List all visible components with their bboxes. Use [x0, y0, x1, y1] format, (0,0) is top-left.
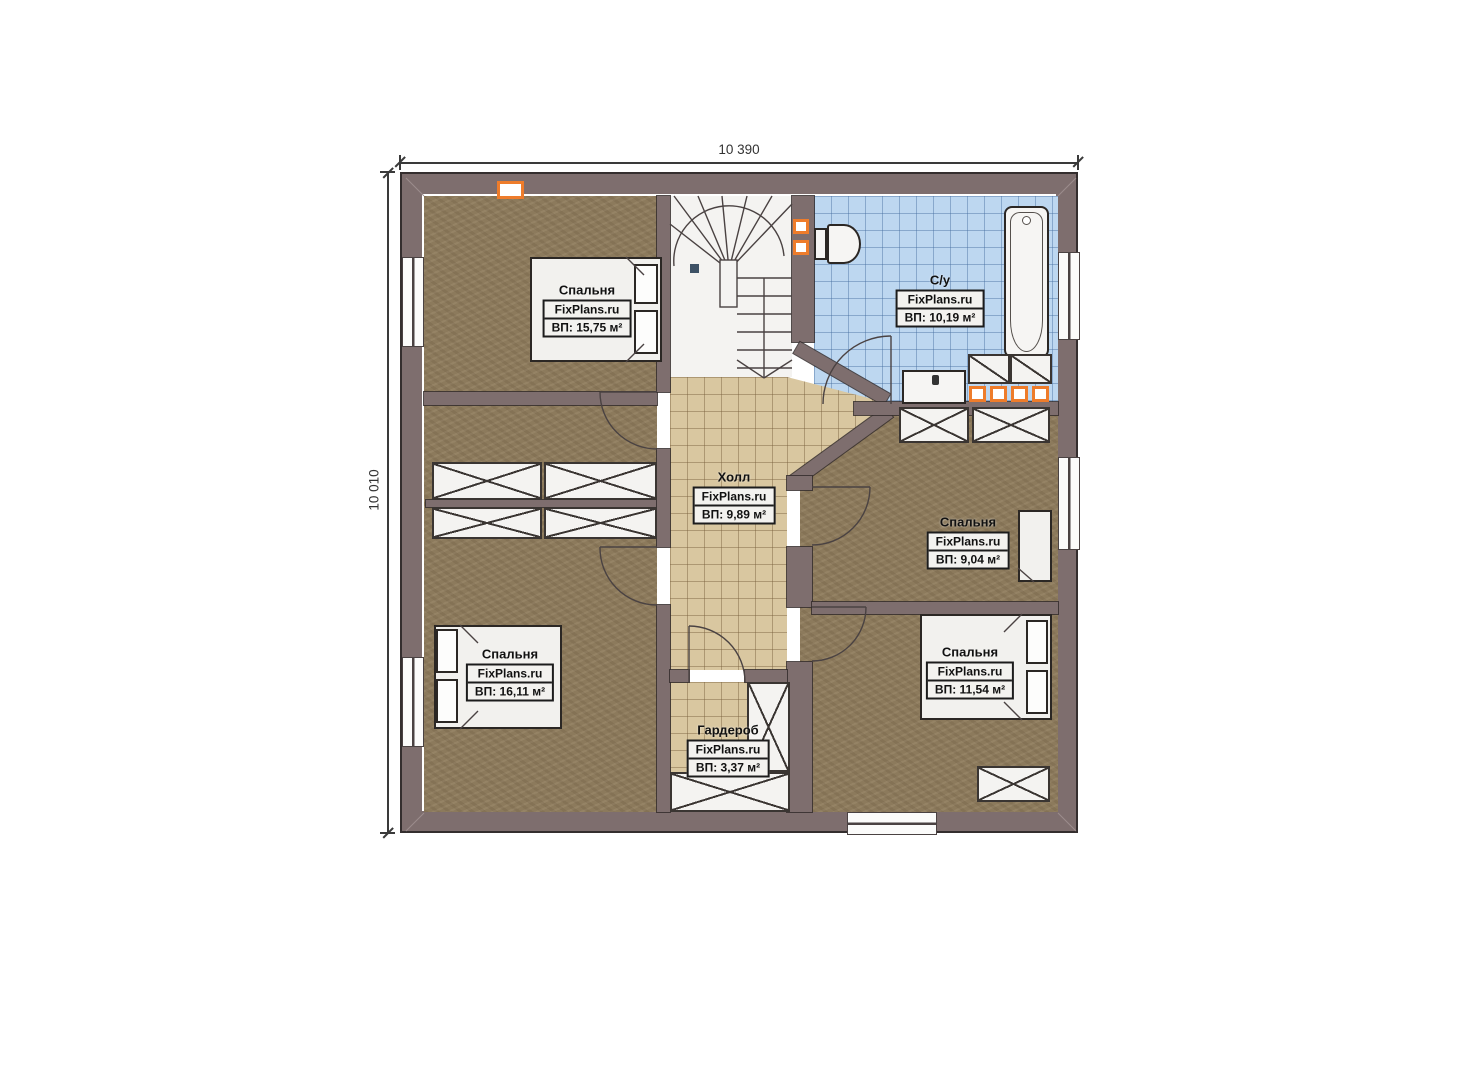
wall-segment	[792, 196, 814, 342]
pillow	[634, 310, 658, 354]
bathtub-drain	[1022, 216, 1031, 225]
closet-unit	[899, 407, 969, 443]
room-name: С/у	[896, 273, 985, 288]
room-label-bathroom: С/у FixPlans.ru ВП: 10,19 м²	[896, 273, 985, 328]
radiator-cell	[969, 386, 986, 402]
faucet	[932, 375, 939, 385]
room-area: ВП: 15,75 м²	[545, 318, 630, 336]
window-left-bottom	[402, 657, 424, 747]
room-area: ВП: 10,19 м²	[898, 308, 983, 326]
dimension-height-label: 10 010	[367, 465, 382, 514]
vent-stair-wall	[793, 240, 809, 255]
bath-cabinet	[968, 354, 1010, 384]
dimension-end	[1077, 155, 1079, 170]
closet-unit	[977, 766, 1050, 802]
window-right-bedroom	[1058, 457, 1080, 550]
sink	[902, 370, 966, 404]
pillow	[436, 679, 458, 723]
room-label-bedroom-tl: Спальня FixPlans.ru ВП: 15,75 м²	[543, 283, 632, 338]
pillow	[1026, 670, 1048, 714]
room-label-bedroom-bl: Спальня FixPlans.ru ВП: 16,11 м²	[466, 647, 554, 702]
dimension-end	[380, 171, 395, 173]
brand-watermark: FixPlans.ru	[898, 292, 983, 308]
room-label-box: FixPlans.ru ВП: 16,11 м²	[466, 664, 554, 702]
dimension-line-left	[387, 172, 389, 833]
room-name: Гардероб	[687, 723, 770, 738]
closet-unit	[432, 462, 542, 500]
brand-watermark: FixPlans.ru	[929, 534, 1008, 550]
wall-segment	[745, 670, 787, 682]
room-area: ВП: 3,37 м²	[689, 758, 768, 776]
room-label-box: FixPlans.ru ВП: 9,04 м²	[927, 532, 1010, 570]
room-label-bedroom-mr: Спальня FixPlans.ru ВП: 9,04 м²	[927, 515, 1010, 570]
room-label-hall: Холл FixPlans.ru ВП: 9,89 м²	[693, 470, 776, 525]
room-label-box: FixPlans.ru ВП: 15,75 м²	[543, 300, 632, 338]
window-right-bathroom	[1058, 252, 1080, 340]
vent-stair-wall	[793, 219, 809, 234]
brand-watermark: FixPlans.ru	[468, 666, 552, 682]
dimension-end	[399, 155, 401, 170]
toilet-bowl	[827, 224, 861, 264]
wall-segment	[812, 602, 1058, 614]
room-label-box: FixPlans.ru ВП: 10,19 м²	[896, 290, 985, 328]
dimension-width-label: 10 390	[714, 142, 763, 157]
bath-cabinet	[1010, 354, 1052, 384]
wall-segment	[424, 392, 657, 405]
toilet-tank	[814, 228, 827, 260]
wall-segment	[657, 449, 670, 547]
closet-unit	[544, 507, 657, 539]
dimension-line-top	[400, 162, 1078, 164]
room-label-box: FixPlans.ru ВП: 9,89 м²	[693, 487, 776, 525]
radiator-row	[969, 386, 1049, 402]
wardrobe-unit	[670, 772, 790, 812]
floor-plan-page: 10 390 10 010	[0, 0, 1473, 1080]
pillow	[634, 264, 658, 304]
radiator-cell	[990, 386, 1007, 402]
pillow	[1026, 620, 1048, 664]
wall-segment	[426, 500, 657, 507]
closet-unit	[544, 462, 657, 500]
wall-segment	[787, 547, 812, 607]
wall-segment	[670, 670, 689, 682]
brand-watermark: FixPlans.ru	[545, 302, 630, 318]
wall-segment	[657, 605, 670, 812]
room-label-wardrobe: Гардероб FixPlans.ru ВП: 3,37 м²	[687, 723, 770, 778]
room-name: Спальня	[543, 283, 632, 298]
vent-top-wall	[497, 181, 524, 199]
pillow	[436, 629, 458, 673]
room-name: Спальня	[926, 645, 1014, 660]
bathtub	[1004, 206, 1049, 358]
room-label-bedroom-br: Спальня FixPlans.ru ВП: 11,54 м²	[926, 645, 1014, 700]
room-area: ВП: 11,54 м²	[928, 680, 1012, 698]
brand-watermark: FixPlans.ru	[689, 742, 768, 758]
floor-plan: Спальня FixPlans.ru ВП: 15,75 м² С/у Fix…	[400, 172, 1078, 833]
room-area: ВП: 16,11 м²	[468, 682, 552, 700]
closet-unit	[432, 507, 542, 539]
brand-watermark: FixPlans.ru	[928, 664, 1012, 680]
radiator-cell	[1011, 386, 1028, 402]
room-name: Холл	[693, 470, 776, 485]
wall-segment	[787, 662, 812, 812]
brand-watermark: FixPlans.ru	[695, 489, 774, 505]
room-name: Спальня	[927, 515, 1010, 530]
room-name: Спальня	[466, 647, 554, 662]
dimension-end	[380, 832, 395, 834]
closet-unit	[972, 407, 1050, 443]
window-bottom	[847, 812, 937, 835]
floor-staircase	[670, 196, 792, 377]
bed-bedroom-mr	[1018, 510, 1052, 582]
room-label-box: FixPlans.ru ВП: 3,37 м²	[687, 740, 770, 778]
room-area: ВП: 9,04 м²	[929, 550, 1008, 568]
wall-segment	[787, 476, 812, 490]
room-label-box: FixPlans.ru ВП: 11,54 м²	[926, 662, 1014, 700]
room-area: ВП: 9,89 м²	[695, 505, 774, 523]
window-left-top	[402, 257, 424, 347]
radiator-cell	[1032, 386, 1049, 402]
